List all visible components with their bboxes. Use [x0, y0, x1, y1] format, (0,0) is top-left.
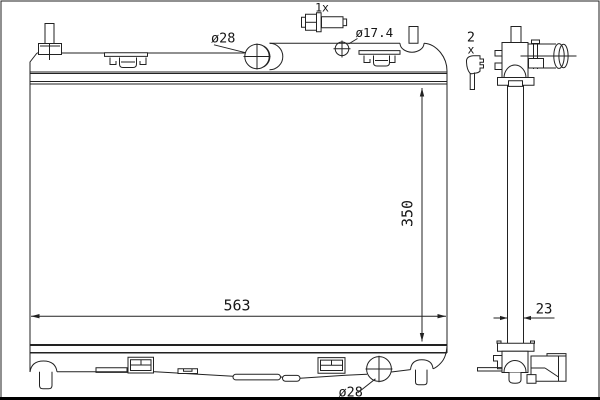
side-u-tab	[509, 373, 521, 384]
radiator-technical-drawing: 563 350 23 ø28 ø17.4 ø28 1x	[0, 0, 600, 400]
bracket-bar	[105, 53, 148, 57]
side-body-bottom	[502, 351, 528, 372]
plug-threads	[322, 17, 344, 28]
crenellation-wave	[30, 346, 447, 353]
side-flange-bottom	[498, 343, 535, 351]
overflow-stub	[409, 27, 418, 44]
bracket-hook-r	[140, 58, 146, 65]
clip-callout: 2 x	[466, 30, 483, 90]
arrow-right-in	[500, 316, 508, 320]
label-inlet-diameter: ø28	[211, 31, 246, 53]
pin-stem	[45, 24, 54, 44]
plug-flange	[317, 13, 322, 32]
pipe-barrel-arc-outer	[270, 43, 283, 70]
side-bracket-left	[494, 356, 503, 369]
pipe-clamp-head	[532, 40, 540, 44]
mount-hump-left	[30, 361, 57, 372]
label-thread-diameter: ø17.4	[349, 25, 394, 44]
plug-washer	[302, 17, 306, 27]
drain-plug-callout: 1x	[302, 1, 347, 32]
mounting-pin-top-left	[39, 24, 62, 61]
side-sub-block	[529, 59, 544, 69]
top-right-corner	[424, 43, 447, 346]
side-flange-tab	[509, 81, 523, 87]
side-view	[478, 27, 577, 384]
side-bottom-tank	[478, 341, 567, 383]
dimension-width-563: 563	[31, 297, 446, 319]
side-top-tank	[495, 27, 577, 87]
flange-piece-a	[233, 374, 281, 380]
top-bracket-left	[105, 53, 148, 68]
thread-diameter-text: ø17.4	[356, 25, 394, 40]
top-bracket-right	[359, 51, 400, 66]
outlet-pipe	[366, 356, 393, 382]
inlet-pipe	[244, 43, 283, 70]
clip-inner-line	[470, 73, 474, 74]
filler-boss-arc	[400, 43, 424, 52]
mount-peg-left	[40, 372, 53, 389]
mount-hump-right	[411, 360, 434, 370]
mount-peg-right	[416, 370, 428, 385]
clip-qty-x: x	[468, 43, 475, 57]
dimension-height-350: 350	[399, 88, 425, 342]
side-tab-2	[495, 63, 502, 70]
bracket-hook-l	[364, 56, 370, 63]
dim-width-text: 563	[223, 297, 250, 315]
front-view	[30, 24, 447, 389]
label-outlet-diameter: ø28	[339, 379, 376, 400]
flange-piece-b	[283, 375, 301, 381]
side-tab-1	[495, 51, 502, 57]
outline-left-edge	[30, 53, 37, 372]
fitting-tab	[527, 375, 536, 384]
bracket-hook-l	[110, 58, 116, 65]
crenellation-wave	[30, 74, 447, 82]
dim-height-text: 350	[399, 200, 417, 227]
clip-outline	[466, 56, 483, 90]
connector-box-2	[318, 358, 345, 374]
arrow-right	[438, 314, 447, 318]
arrow-down	[420, 333, 424, 342]
connector-box-1	[128, 357, 154, 373]
side-stub	[511, 27, 521, 43]
drain-plug-screw-icon	[302, 13, 347, 32]
bracket-bar	[359, 51, 400, 55]
dim-depth-text: 23	[536, 302, 553, 318]
side-body	[502, 43, 528, 79]
mounting-clip-icon	[466, 56, 483, 90]
clip-piece	[178, 369, 198, 374]
side-fitting-right	[527, 354, 566, 384]
drawing-svg: 563 350 23 ø28 ø17.4 ø28 1x	[0, 0, 600, 400]
core-top-crenellation	[30, 72, 447, 84]
inlet-diameter-text: ø28	[211, 31, 235, 47]
arrow-left	[31, 314, 40, 318]
arrow-left-in	[524, 316, 532, 320]
plug-tip	[343, 19, 347, 26]
core-bottom-crenellation	[30, 345, 447, 354]
arrow-up	[420, 88, 424, 97]
tank-corner-bottom-right	[433, 346, 447, 369]
